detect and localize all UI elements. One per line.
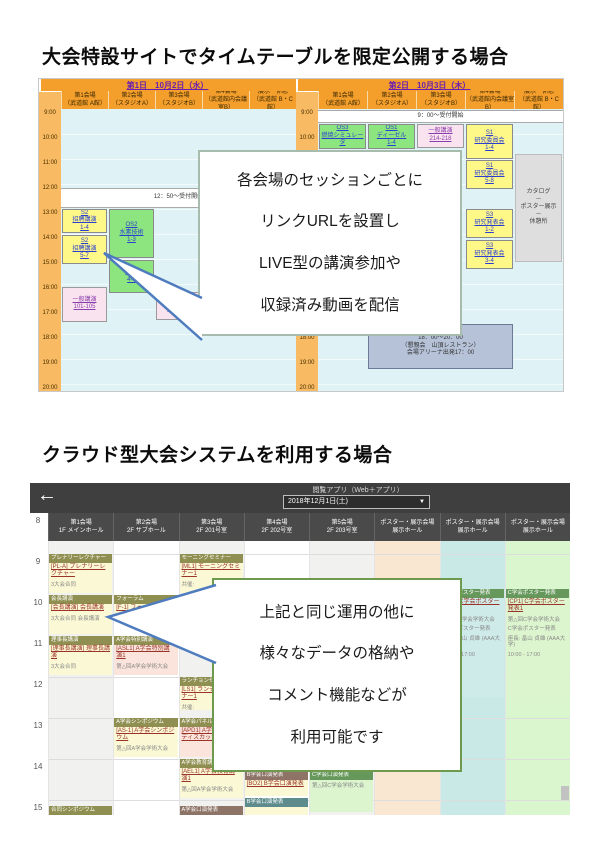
venue-name: 第1会場 [319,92,367,100]
hour-gridline [61,134,296,135]
session-text: ポスター展示 [516,204,561,212]
venue-room: （スタジオA） [368,100,416,108]
time-label: 14:00 [39,235,61,241]
column-header-room: 展示ホール [506,527,570,535]
column-header: ポスター・展示会場展示ホール [374,513,439,541]
column-header: 第2会場2F サブホール [113,513,178,541]
session-subtext: 第△回C学会学術大会 [506,617,569,624]
column-header-name: ポスター・展示会場 [506,519,570,527]
time-label: 11:00 [39,160,61,166]
session-link[interactable]: 5-8 [467,178,512,186]
callout-line: 上記と同じ運用の他に [214,602,460,624]
time-label: 15:00 [39,260,61,266]
session-block[interactable]: S3研究発表会3-4 [466,240,513,269]
hour-number: 12 [32,680,44,689]
session-link[interactable]: 1-2 [467,227,512,235]
column-header-room: 2F 201号室 [180,527,244,535]
session-block[interactable]: S1研究委員会5-8 [466,160,513,189]
session-link[interactable]: S1 [467,130,512,138]
time-label: 9:00 [296,110,318,116]
chevron-down-icon: ▼ [419,496,425,508]
venue-room: （スタジオB） [156,100,202,108]
session-link[interactable]: 研究委員会 [467,171,512,179]
session-title-bar: プレナリーレクチャー [49,554,112,563]
venue-header: 第4会場（武道館内会議室B） [465,91,514,109]
time-label: 20:00 [39,385,61,391]
column-header-room: 2F 202号室 [245,527,309,535]
session-block: C学会口演発表第△回C学会学術大会 [310,771,373,812]
venue-room: （武道館 B・C館） [250,96,296,109]
callout-tail-2 [100,575,220,675]
session-link[interactable]: 214-218 [418,136,463,144]
session-link[interactable]: 3-4 [467,258,512,266]
session-text: カタログ [516,189,561,197]
session-body: 第△回C学会学術大会 [310,780,373,812]
venue-name: 第3会場 [156,92,202,100]
venue-room: （武道館 A館） [62,100,108,108]
column-header: 第4会場2F 202号室 [244,513,309,541]
session-block[interactable]: OS1ディーゼル1-4 [368,124,415,149]
session-text: － [516,197,561,205]
session-link[interactable]: OS2 [110,222,153,230]
date-dropdown-value: 2018年12月1日(土) [288,498,348,505]
time-label: 12:00 [39,185,61,191]
time-label: 19:00 [39,360,61,366]
session-link[interactable]: OS3 [320,125,365,133]
venue-header: 展示・休憩（武道館 B・C館） [249,91,296,109]
time-label: 18:00 [39,335,61,341]
callout-line: 各会場のセッションごとに [200,170,460,192]
column-header-name: 第3会場 [180,519,244,527]
session-body: [AEL1] A学会教育講演1第△回A学会学術大会 [180,768,243,798]
day-label-link[interactable]: 第2日 10月3日（木） [296,80,563,91]
callout-line: 利用可能です [214,727,460,749]
callout-bubble-1: 各会場のセッションごとに リンクURLを設置し LIVE型の講演参加や 収録済み… [198,150,462,336]
time-label: 10:00 [296,135,318,141]
session-block[interactable]: S3研究発表会1-2 [466,209,513,238]
page: 大会特設サイトでタイムテーブルを限定公開する場合 第1日 10月2日（水）第1会… [0,0,600,867]
venue-header: 展示・休憩（武道館 B・C館） [514,91,563,109]
hour-number: 14 [32,762,44,771]
session-title-bar: C学会口演発表 [310,771,373,780]
hour-number: 8 [32,516,44,525]
time-label: 10:00 [39,135,61,141]
column-header-name: 第5会場 [310,519,374,527]
session-subtext: 座長: 畠山 貞雄 (AAA大学) [506,636,569,649]
session-subtext: 第△回A学会学術大会 [114,746,177,753]
session-link[interactable]: 1-4 [63,225,106,233]
venue-header: 第3会場（スタジオB） [155,91,202,109]
session-link[interactable]: 1-4 [369,140,414,148]
session-link[interactable]: 研究発表会 [467,251,512,259]
app-mode-label: 閲覧アプリ（Web＋アプリ） [253,485,463,495]
venue-header: 第1会場（武道館 A館） [61,91,108,109]
callout-line: コメント機能などが [214,685,460,707]
hour-number: 15 [32,803,44,812]
session-subtext: 第△回A学会学術大会 [180,787,243,794]
session-block[interactable]: OS3燃焼シミュレータ [319,124,366,149]
venue-name: 第2会場 [368,92,416,100]
session-link[interactable]: 研究委員会 [467,138,512,146]
back-arrow-icon[interactable]: ← [37,484,57,507]
venue-room: （武道館内会議室B） [203,96,249,109]
column-header-name: 第2会場 [114,519,178,527]
column-header-room: 2F サブホール [114,527,178,535]
session-link[interactable]: [AS-1] A学会シンポジウム [114,727,177,743]
column-header: ポスター・展示会場展示ホール [505,513,570,541]
hour-number: 11 [32,639,44,648]
session-link[interactable]: S1 [467,163,512,171]
section1-heading: 大会特設サイトでタイムテーブルを限定公開する場合 [42,42,508,69]
column-header-name: ポスター・展示会場 [441,519,505,527]
session-block: C学会ポスター発表[CP1] C学会ポスター発表1第△回C学会学術大会C学会ポス… [506,589,569,698]
session-link[interactable]: S3 [467,243,512,251]
session-block[interactable]: 一般講演214-218 [417,124,464,148]
session-link[interactable]: 一般講演 [418,128,463,136]
hour-number: 9 [32,557,44,566]
section2-heading: クラウド型大会システムを利用する場合 [42,440,392,467]
column-header: 第3会場2F 201号室 [179,513,244,541]
session-block: A学会シンポジウム[AS-1] A学会シンポジウム第△回A学会学術大会 [114,718,177,757]
session-subtext: C学会ポスター発表 [506,626,569,633]
column-header-name: ポスター・展示会場 [375,519,439,527]
session-link[interactable]: OS1 [369,125,414,133]
session-block: 合同シンポジウム [49,806,112,815]
session-link[interactable]: ディーゼル [369,133,414,141]
session-title-bar: B学会口演発表 [245,798,308,807]
venue-room: （武道館 A館） [319,100,367,108]
session-link[interactable]: 研究発表会 [467,220,512,228]
session-link[interactable]: S3 [467,212,512,220]
callout-line: リンクURLを設置し [200,211,460,233]
session-link[interactable]: S2 [63,210,106,218]
time-label: 17:00 [39,310,61,316]
venue-name: 第1会場 [62,92,108,100]
session-text: 休憩所 [516,219,561,227]
session-block: B学会口演発表 [245,798,308,815]
venue-header: 第2会場（スタジオA） [108,91,155,109]
session-block: B学会口演発表[BO2] B学会口演発表 [245,771,308,796]
session-subtext: 第△回C学会学術大会 [310,783,373,790]
venue-name: 第3会場 [417,92,465,100]
session-title-bar: A学会シンポジウム [114,718,177,727]
session-title-bar: A学会口演発表 [180,806,243,815]
session-text: － [516,212,561,220]
column-header-room: 1F メインホール [49,527,113,535]
session-title-bar: モーニングセミナー [180,554,243,563]
time-label: 13:00 [39,210,61,216]
session-link[interactable]: 水素技術 [110,230,153,238]
column-header-room: 展示ホール [441,527,505,535]
session-link[interactable]: [CP1] C学会ポスター発表1 [506,598,569,614]
time-label: 9:00 [39,110,61,116]
time-label: 19:00 [296,360,318,366]
session-block[interactable]: S1研究委員会1-4 [466,124,513,159]
date-dropdown[interactable]: ▼2018年12月1日(土) [283,495,430,509]
callout-line: 様々なデータの格納や [214,643,460,665]
venue-room: （武道館 B・C館） [515,96,563,109]
session-body [245,807,308,815]
session-body: [AS-1] A学会シンポジウム第△回A学会学術大会 [114,727,177,757]
session-text: 9：00～受付開始 [318,113,563,121]
session-text: 18：00～20：00 [369,335,512,343]
session-title-bar: C学会ポスター発表 [506,589,569,598]
hour-gridline [61,384,296,385]
session-link[interactable]: 1-4 [467,145,512,153]
column-header: 第1会場1F メインホール [48,513,113,541]
venue-header: 第3会場（スタジオB） [416,91,465,109]
column-header: 第5会場2F 203号室 [309,513,374,541]
venue-room: （武道館内会議室B） [466,96,514,109]
session-title-bar: B学会口演発表 [245,771,308,780]
callout-line: 収録済み動画を配信 [200,295,460,317]
session-text: 会場アリーナ出発17：00 [369,350,512,358]
session-link[interactable]: 招聘講演 [63,217,106,225]
venue-room: （スタジオB） [417,100,465,108]
time-label: 20:00 [296,385,318,391]
venue-header: 第2会場（スタジオA） [367,91,416,109]
session-block: 9：00～受付開始 [318,110,563,123]
session-body: [CP1] C学会ポスター発表1第△回C学会学術大会C学会ポスター発表座長: 畠… [506,598,569,698]
venue-header: 第4会場（武道館内会議室B） [202,91,249,109]
day-label-link[interactable]: 第1日 10月2日（水） [39,80,296,91]
venue-room: （スタジオA） [109,100,155,108]
session-body: [BO2] B学会口演発表 [245,780,308,796]
column-header: ポスター・展示会場展示ホール [440,513,505,541]
callout-tail-1 [95,240,210,345]
hour-number: 10 [32,598,44,607]
venue-name: 第2会場 [109,92,155,100]
scrollbar-thumb[interactable] [561,786,569,800]
column-header-name: 第4会場 [245,519,309,527]
callout-line: LIVE型の講演参加や [200,253,460,275]
callout-bubble-2: 上記と同じ運用の他に 様々なデータの格納や コメント機能などが 利用可能です [212,578,462,772]
session-block: A学会口演発表 [180,806,243,815]
column-header-room: 展示ホール [375,527,439,535]
session-link[interactable]: 燃焼シミュレータ [320,133,365,148]
column-header-room: 2F 203号室 [310,527,374,535]
session-title-bar: 合同シンポジウム [49,806,112,815]
session-link[interactable]: [BO2] B学会口演発表 [245,780,308,789]
hour-gridline [318,384,563,385]
hour-gridline [61,359,296,360]
column-header-name: 第1会場 [49,519,113,527]
time-label: 16:00 [39,285,61,291]
hour-number: 13 [32,721,44,730]
session-subtext: 10:00 - 17:00 [506,652,569,659]
session-block[interactable]: S2招聘講演1-4 [62,209,107,233]
venue-header: 第1会場（武道館 A館） [318,91,367,109]
session-block: カタログ－ポスター展示－休憩所 [515,154,562,262]
